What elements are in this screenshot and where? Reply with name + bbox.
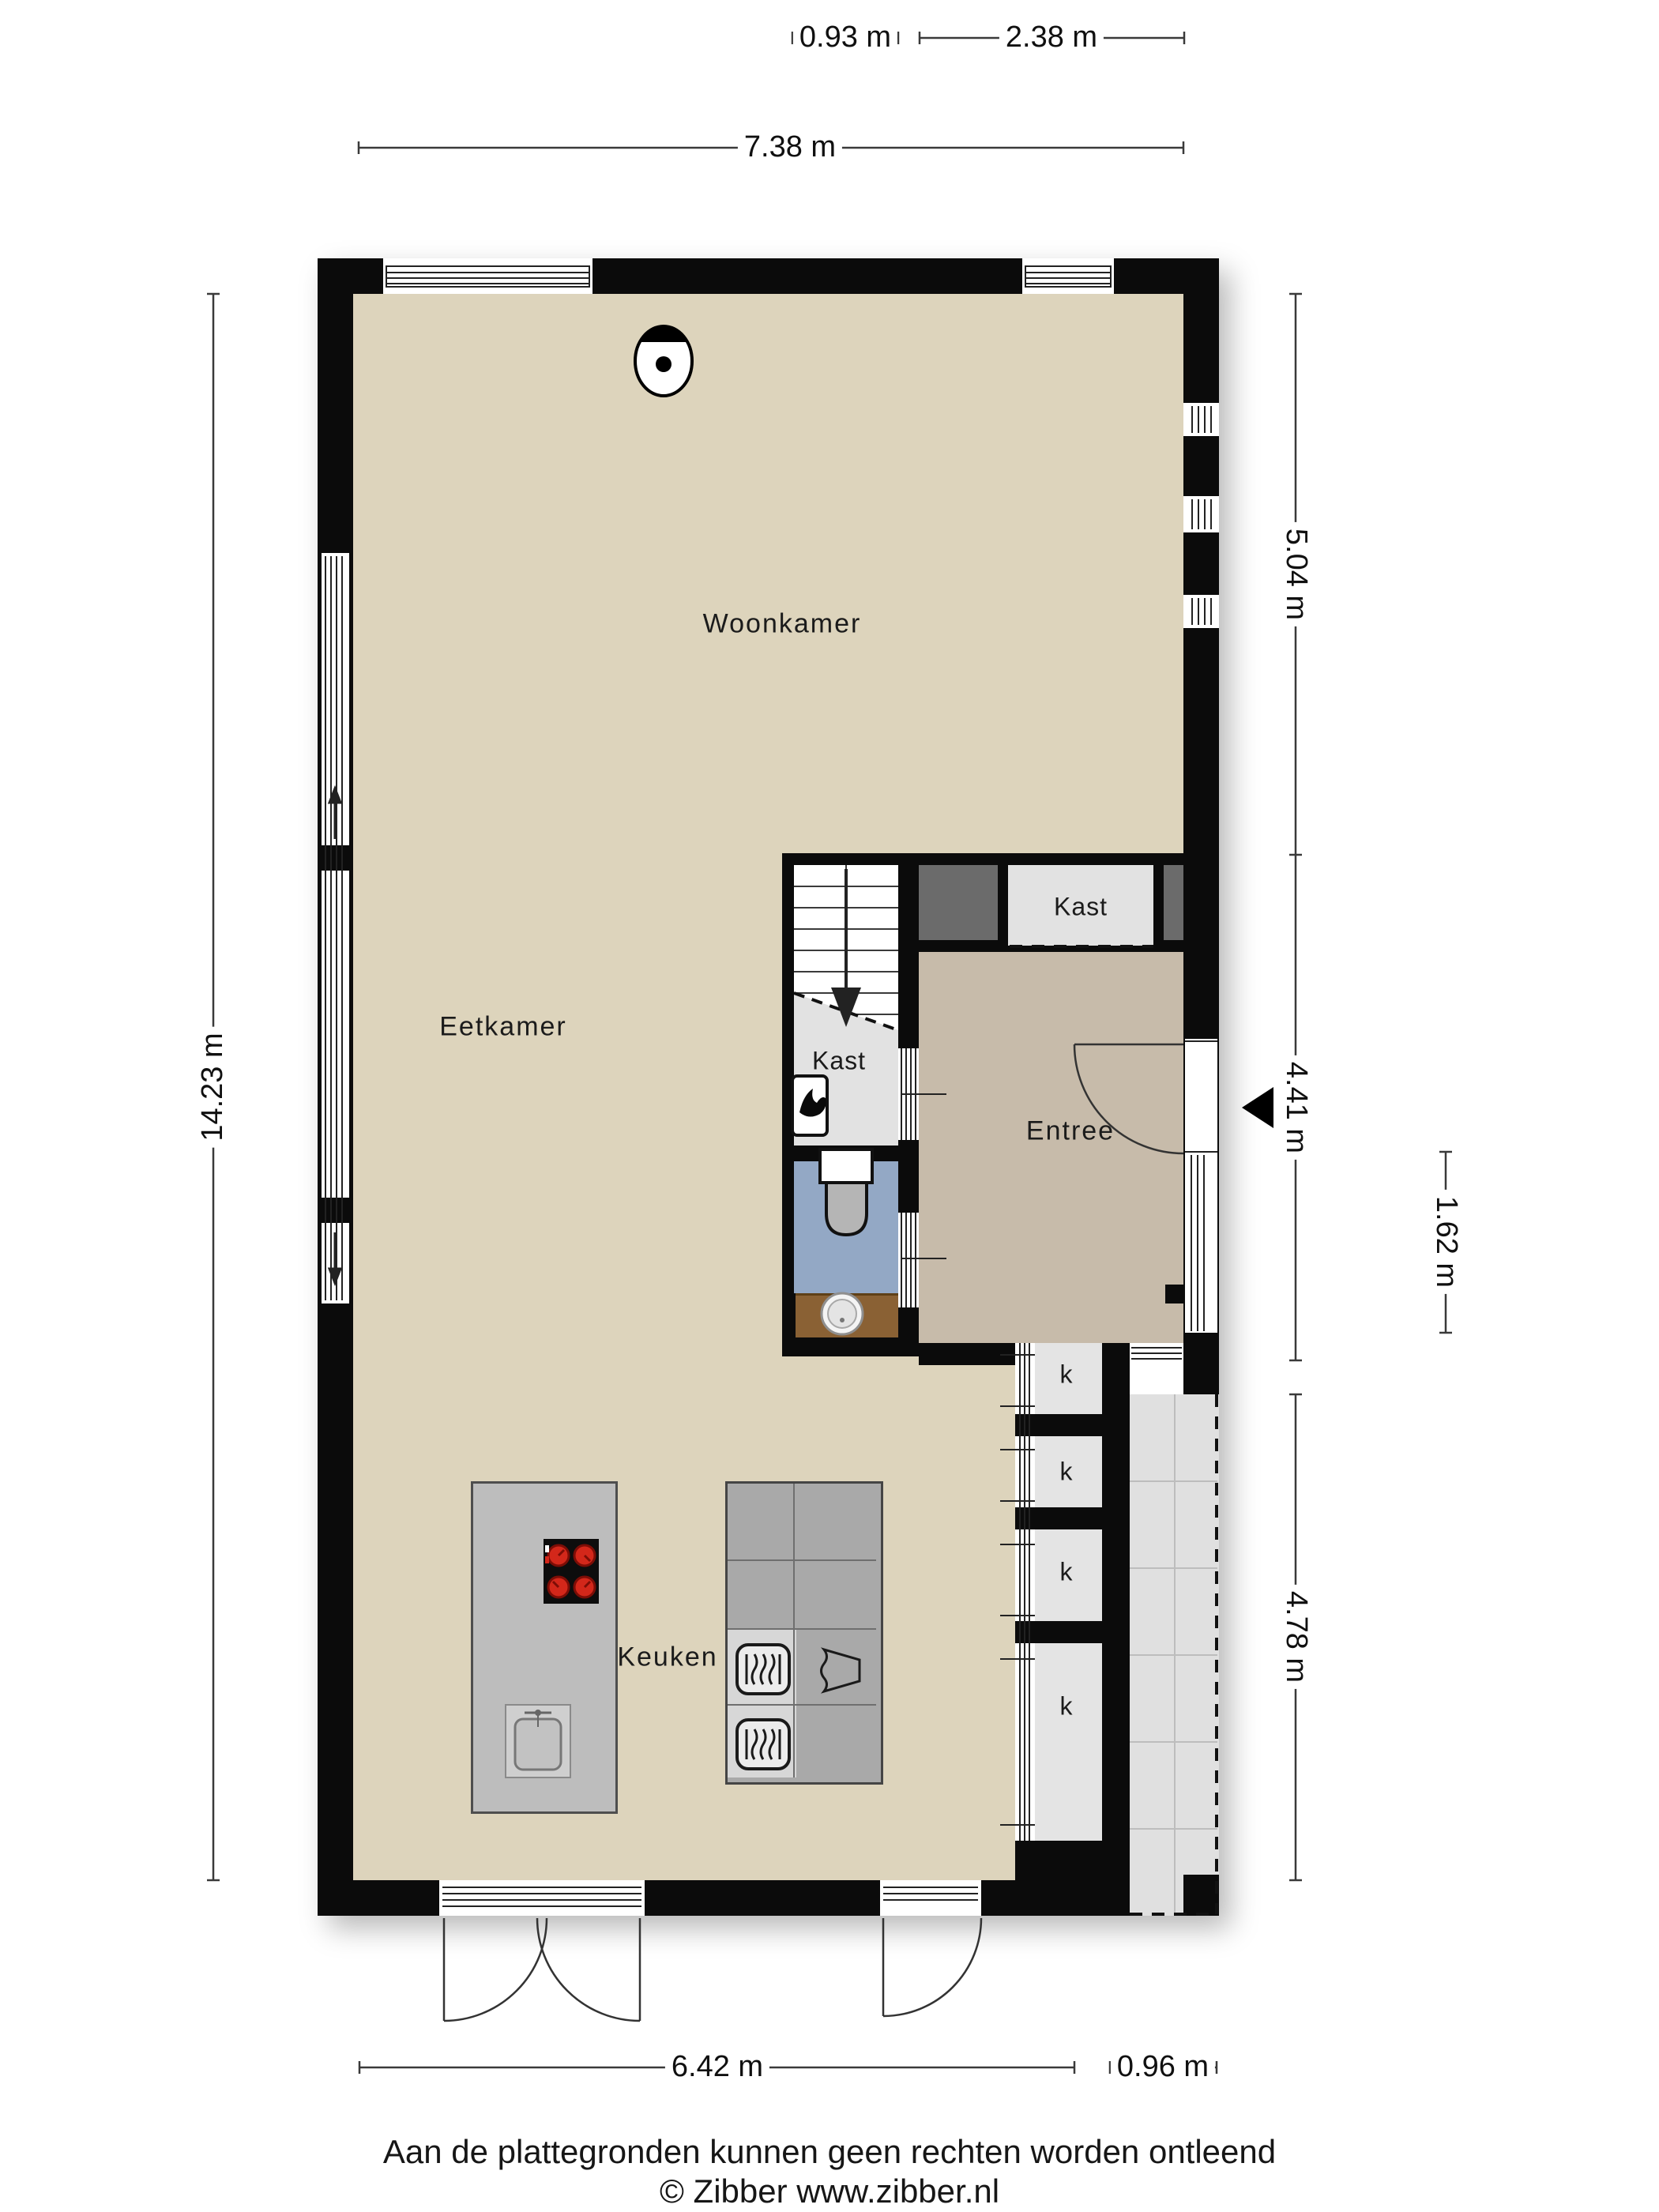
entree-column: [1165, 1285, 1183, 1303]
dim-right-lower: 4.78 m: [1278, 1585, 1313, 1689]
kast-sliding-door: [898, 1048, 919, 1140]
kitchen-counter-appliance-column: [728, 1629, 796, 1777]
window-east-1: [1183, 403, 1219, 436]
closet-label-k3: k: [1060, 1558, 1074, 1587]
footer-copyright: © Zibber www.zibber.nl: [660, 2172, 999, 2210]
dim-top-total: 7.38 m: [738, 130, 842, 165]
dark-closet-right: [1164, 865, 1183, 940]
window-east-3: [1183, 595, 1219, 628]
closet-niche-4: [1035, 1643, 1102, 1841]
toilet-sliding-door: [898, 1213, 919, 1307]
niche-wall-stub-1: [1015, 1414, 1102, 1436]
closet-label-k4: k: [1060, 1692, 1074, 1721]
wall-niche-east: [1102, 1343, 1130, 1916]
dim-bottom-main: 6.42 m: [665, 2050, 769, 2085]
window-north-1: [383, 258, 592, 294]
floor-living-room: [353, 294, 1183, 853]
entrance-arrow-icon: [1242, 1087, 1273, 1128]
closet-label-k2: k: [1060, 1458, 1074, 1487]
room-label-eetkamer: Eetkamer: [439, 1012, 567, 1043]
floor-terrace: [1130, 1394, 1219, 1916]
window-west-stub-1: [318, 845, 353, 871]
dim-right-middle: 4.41 m: [1278, 1055, 1313, 1160]
niche-wall-stub-2: [1015, 1507, 1102, 1529]
window-east-2: [1183, 496, 1219, 532]
room-label-kast-stairs: Kast: [812, 1047, 866, 1076]
french-doors-swing: [444, 1918, 640, 2021]
room-label-woonkamer: Woonkamer: [703, 609, 862, 640]
dark-closet-left: [919, 865, 998, 940]
footer-disclaimer: Aan de plattegronden kunnen geen rechten…: [383, 2133, 1276, 2171]
room-label-keuken: Keuken: [617, 1642, 717, 1673]
dim-bottom-right: 0.96 m: [1111, 2050, 1215, 2085]
window-entree-south: [1130, 1343, 1183, 1365]
window-north-2: [1022, 258, 1114, 294]
window-west-stub-2: [318, 1198, 353, 1223]
vanity-counter: [796, 1293, 898, 1337]
dim-top-small-left: 0.93 m: [793, 21, 897, 55]
terrace-corner-column: [1183, 1875, 1219, 1916]
window-west-long: [322, 553, 349, 1303]
floorplan-page: Woonkamer Eetkamer Keuken Entree Kast Ka…: [0, 0, 1659, 2212]
dim-left-total: 14.23 m: [196, 1026, 231, 1147]
french-doors-south: [439, 1880, 645, 1916]
staircase: [794, 865, 898, 1035]
dim-top-small-right: 2.38 m: [999, 21, 1104, 55]
front-door-and-sidelight: [1185, 1039, 1217, 1333]
room-label-entree: Entree: [1026, 1116, 1115, 1147]
kitchen-island: [471, 1481, 618, 1814]
dim-right-upper: 5.04 m: [1278, 522, 1313, 626]
south-door-swing: [883, 1918, 981, 2016]
toilet-room-floor: [794, 1161, 898, 1293]
niche-wall-stub-3: [1015, 1621, 1102, 1643]
closet-label-k1: k: [1060, 1360, 1074, 1390]
door-south: [880, 1880, 981, 1916]
room-label-kast-upper: Kast: [1054, 893, 1108, 922]
dim-right-inner: 1.62 m: [1428, 1190, 1463, 1294]
